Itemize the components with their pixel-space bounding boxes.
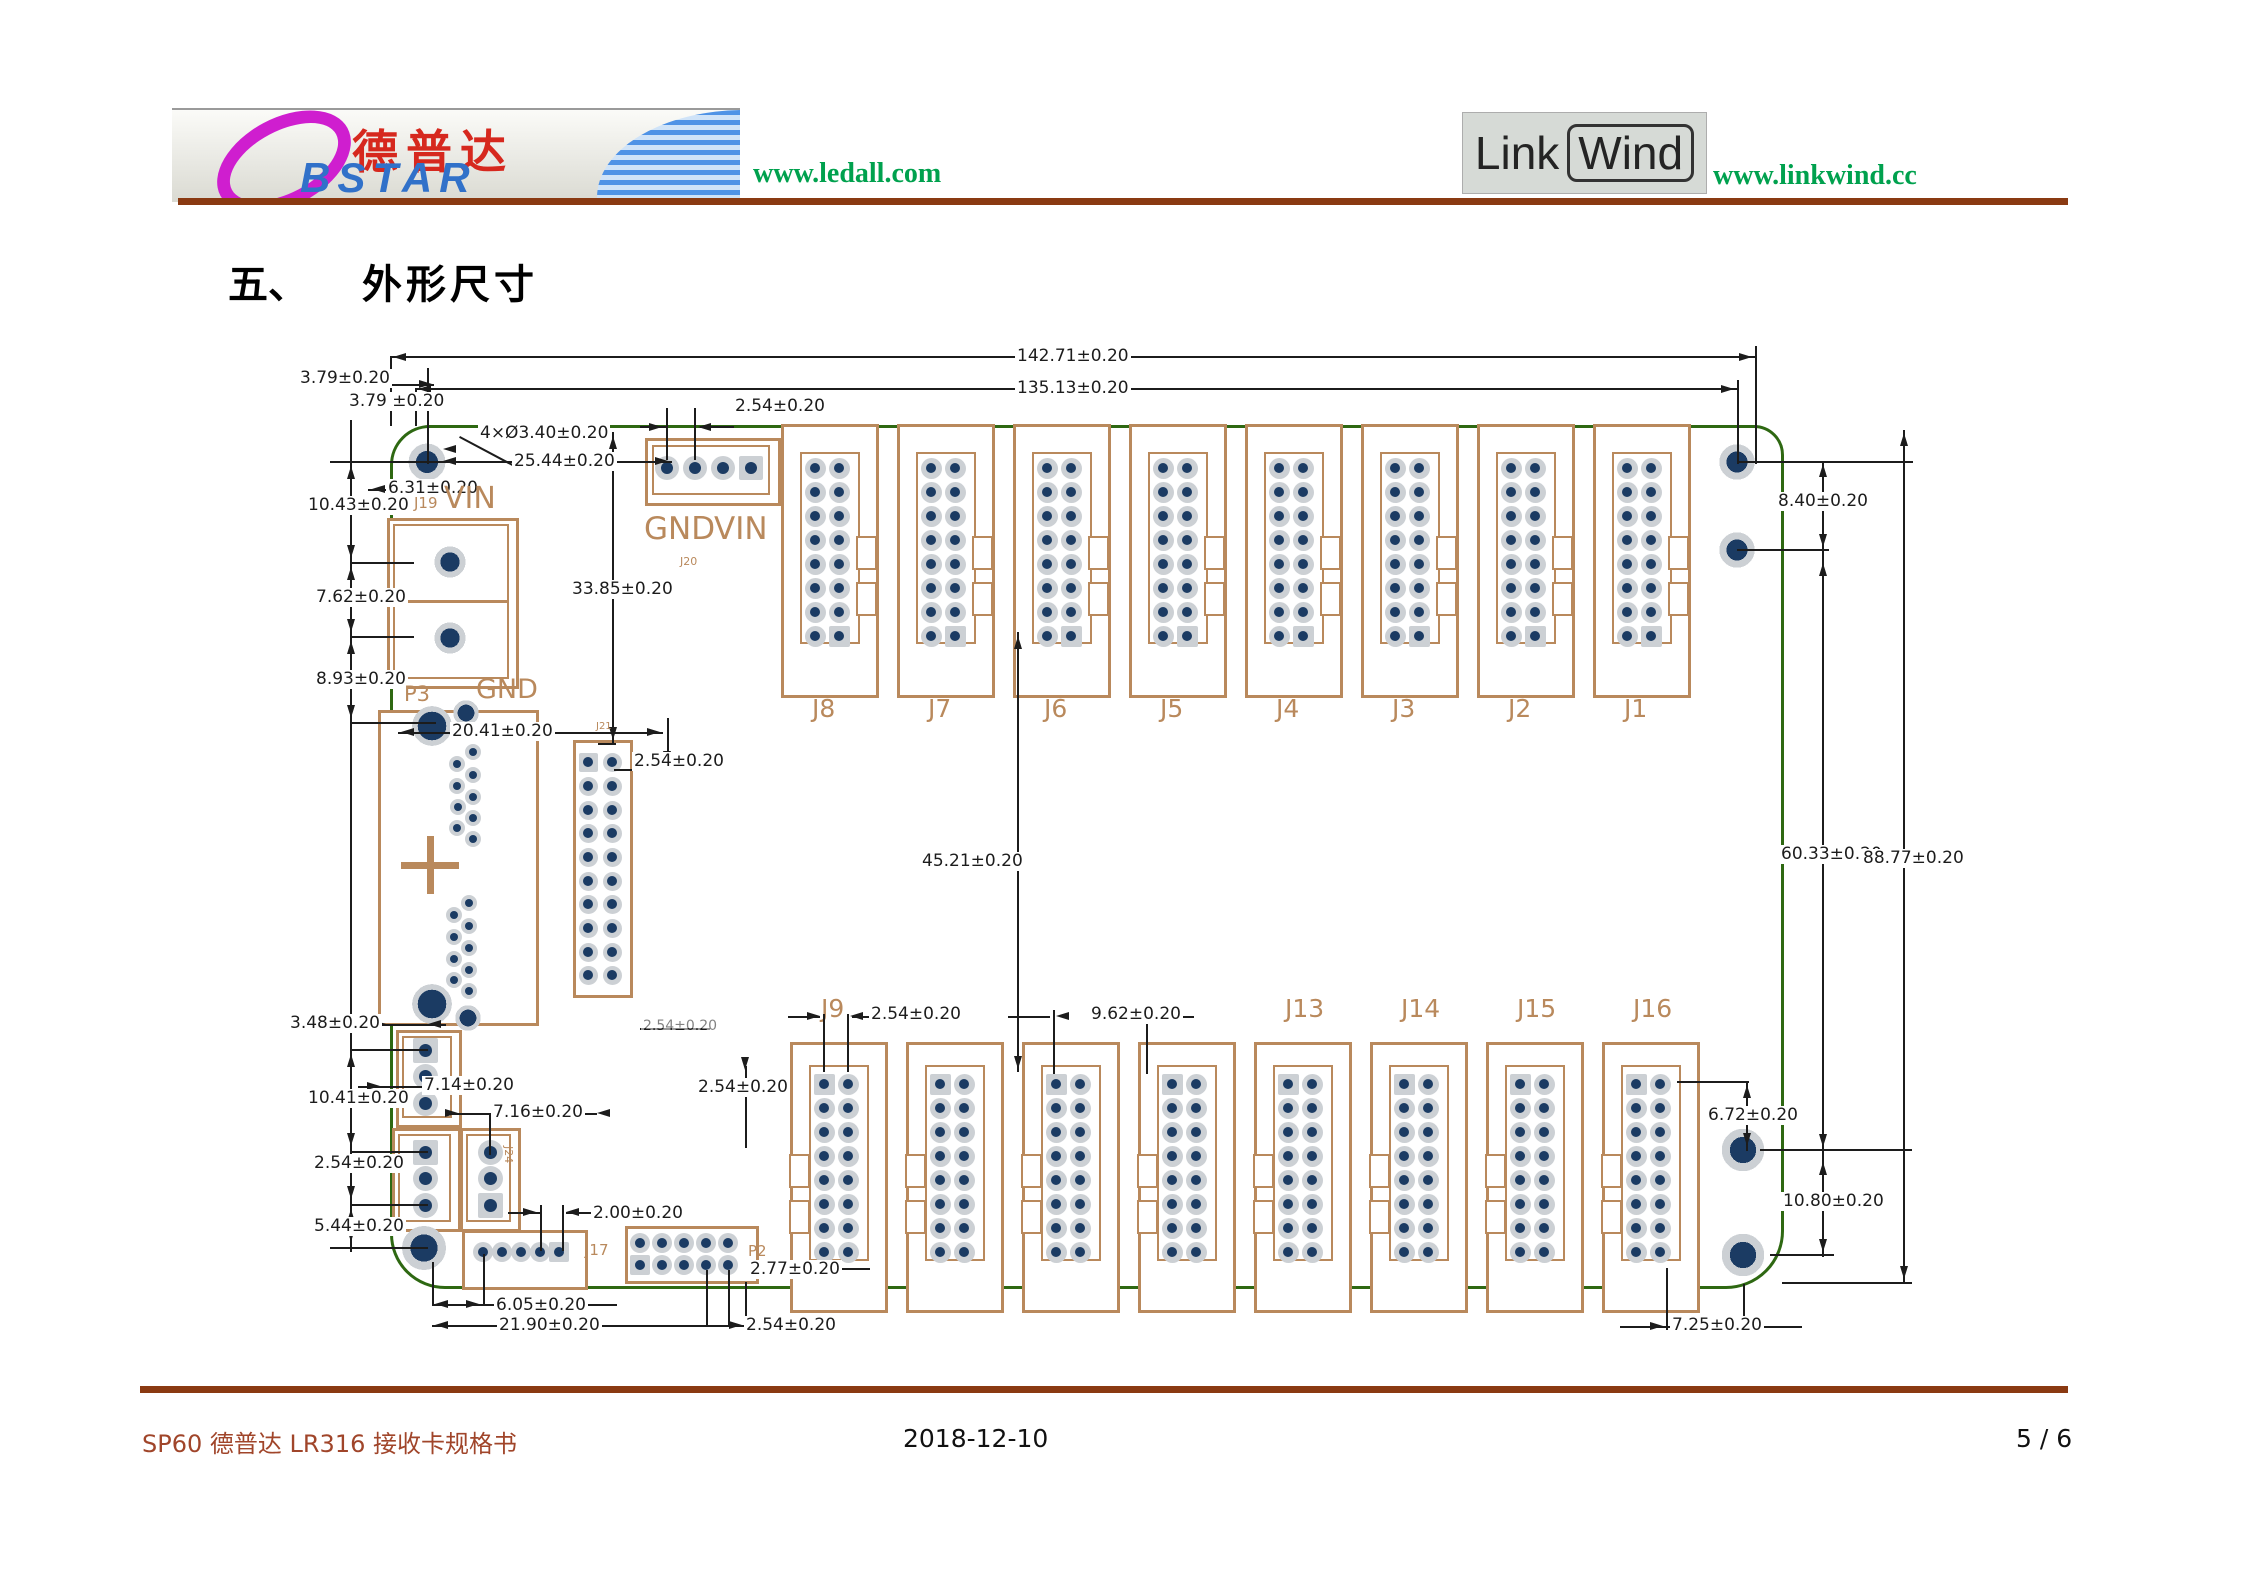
connector-J9-pin bbox=[838, 1170, 859, 1191]
connector-J13-pin bbox=[1278, 1218, 1299, 1239]
connector-J2-pin bbox=[1525, 602, 1546, 623]
connector-J2-pin bbox=[1501, 482, 1522, 503]
dim-arrow-icon bbox=[1900, 1266, 1908, 1279]
connector-bottom_row-2-pin bbox=[1070, 1074, 1091, 1095]
dim-line bbox=[1782, 1282, 1912, 1284]
connector-J1-pin bbox=[1641, 578, 1662, 599]
connector-J5-notch bbox=[1204, 582, 1225, 616]
connector-J21-pin bbox=[603, 801, 622, 820]
dim-arrow-icon bbox=[1819, 1239, 1827, 1252]
connector-J16-pin bbox=[1650, 1242, 1671, 1263]
dim-label: 33.85±0.20 bbox=[570, 580, 675, 599]
connector-label-J3: J3 bbox=[1392, 696, 1415, 721]
connector-J4-pin bbox=[1293, 530, 1314, 551]
connector-J6-pin bbox=[1037, 554, 1058, 575]
connector-J13-pin bbox=[1302, 1074, 1323, 1095]
connector-J9-pin bbox=[814, 1218, 835, 1239]
connector-bottom_row-1-pin bbox=[954, 1194, 975, 1215]
connector-bottom_row-3-pin bbox=[1186, 1074, 1207, 1095]
connector-bottom_row-1-pin bbox=[930, 1218, 951, 1239]
connector-J8-pin bbox=[805, 602, 826, 623]
via-pad bbox=[465, 744, 481, 760]
connector-J3-pin bbox=[1409, 554, 1430, 575]
dim-arrow-icon bbox=[347, 1054, 355, 1067]
dim-arrow-icon bbox=[741, 1057, 749, 1070]
connector-J16-notch bbox=[1601, 1200, 1622, 1234]
dim-line bbox=[1666, 1268, 1668, 1330]
connector-J13-pin bbox=[1302, 1218, 1323, 1239]
connector-J4-pin bbox=[1269, 602, 1290, 623]
dim-label: 2.54±0.20 bbox=[869, 1005, 963, 1024]
dim-line bbox=[350, 562, 414, 564]
connector-J13-pin bbox=[1278, 1098, 1299, 1119]
connector-J13-pin bbox=[1278, 1074, 1299, 1095]
connector-J3-pin bbox=[1409, 482, 1430, 503]
dim-line bbox=[1008, 1016, 1050, 1018]
connector-J6-pin bbox=[1037, 458, 1058, 479]
connector-J7-pin bbox=[921, 626, 942, 647]
connector-J2-pin bbox=[1525, 482, 1546, 503]
connector-J16-pin bbox=[1626, 1170, 1647, 1191]
connector-bottom_row-3-pin bbox=[1186, 1218, 1207, 1239]
solder-pad bbox=[428, 616, 472, 660]
dim-label: 45.21±0.20 bbox=[920, 852, 1025, 871]
connector-J2-pin bbox=[1525, 458, 1546, 479]
connector-J21-pin bbox=[579, 895, 598, 914]
connector-J16-notch bbox=[1601, 1154, 1622, 1188]
connector-J5-pin bbox=[1177, 530, 1198, 551]
connector-J16-pin bbox=[1626, 1074, 1647, 1095]
dim-line bbox=[1737, 461, 1913, 463]
dim-arrow-icon bbox=[807, 1012, 820, 1020]
connector-J4-pin bbox=[1269, 482, 1290, 503]
connector-J20-pin bbox=[711, 456, 735, 480]
connector-J1-pin bbox=[1641, 506, 1662, 527]
connector-J15-pin bbox=[1534, 1242, 1555, 1263]
connector-J7-pin bbox=[945, 530, 966, 551]
dim-line bbox=[694, 408, 696, 460]
connector-J15-pin bbox=[1510, 1170, 1531, 1191]
connector-J5-pin bbox=[1177, 506, 1198, 527]
connector-J3-pin bbox=[1409, 602, 1430, 623]
dim-arrow-icon bbox=[523, 1208, 536, 1216]
connector-J21-pin bbox=[603, 895, 622, 914]
connector-J1-pin bbox=[1617, 554, 1638, 575]
connector-J15-pin bbox=[1510, 1146, 1531, 1167]
connector-J8-pin bbox=[829, 602, 850, 623]
connector-J4-pin bbox=[1269, 626, 1290, 647]
dim-label: 2.77±0.20 bbox=[748, 1260, 842, 1279]
dim-label: 142.71±0.20 bbox=[1015, 347, 1131, 366]
connector-J14-pin bbox=[1394, 1074, 1415, 1095]
connector-bottom_row-3-pin bbox=[1162, 1074, 1183, 1095]
dim-arrow-icon bbox=[597, 1109, 610, 1117]
connector-P2-pin bbox=[674, 1233, 694, 1253]
via-pad bbox=[446, 929, 462, 945]
connector-J6-pin bbox=[1061, 554, 1082, 575]
connector-J6-pin bbox=[1061, 626, 1082, 647]
connector-J7-pin bbox=[945, 626, 966, 647]
connector-J3-notch bbox=[1436, 536, 1457, 570]
connector-J8-pin bbox=[829, 626, 850, 647]
connector-J15-pin bbox=[1534, 1122, 1555, 1143]
connector-J14-pin bbox=[1394, 1146, 1415, 1167]
connector-J6-pin bbox=[1037, 626, 1058, 647]
connector-bottom_row-3-pin bbox=[1162, 1122, 1183, 1143]
connector-J7-notch bbox=[972, 536, 993, 570]
connector-J3-pin bbox=[1385, 626, 1406, 647]
via-pad bbox=[461, 895, 477, 911]
dim-arrow-icon bbox=[347, 705, 355, 718]
connector-J7-pin bbox=[921, 530, 942, 551]
connector-J15-pin bbox=[1510, 1122, 1531, 1143]
connector-J21-pin bbox=[579, 824, 598, 843]
connector-J4-notch bbox=[1320, 536, 1341, 570]
dim-label: 2.54±0.20 bbox=[744, 1316, 838, 1335]
connector-label-J16: J16 bbox=[1633, 996, 1672, 1021]
silk-label: P3 bbox=[404, 684, 430, 705]
connector-J14-pin bbox=[1418, 1194, 1439, 1215]
via-pad bbox=[449, 778, 465, 794]
connector-J7-pin bbox=[945, 506, 966, 527]
connector-J2-notch bbox=[1552, 582, 1573, 616]
connector-J21-pin bbox=[579, 777, 598, 796]
dim-line bbox=[1737, 549, 1829, 551]
connector-J8-pin bbox=[829, 458, 850, 479]
silk-label: J19 bbox=[414, 496, 438, 511]
connector-J19-divider bbox=[392, 600, 508, 603]
connector-J1-pin bbox=[1641, 602, 1662, 623]
dim-line bbox=[350, 1049, 428, 1051]
connector-bottom_row-2-pin bbox=[1046, 1146, 1067, 1167]
connector-J16-pin bbox=[1650, 1218, 1671, 1239]
connector-J2-pin bbox=[1501, 578, 1522, 599]
via-pad bbox=[446, 951, 462, 967]
connector-bottom_row-2-pin bbox=[1070, 1122, 1091, 1143]
via-pad bbox=[449, 820, 465, 836]
connector-J13-pin bbox=[1278, 1122, 1299, 1143]
connector-J6-pin bbox=[1061, 578, 1082, 599]
connector-J5-pin bbox=[1153, 482, 1174, 503]
via-pad bbox=[461, 983, 477, 999]
silk-label: GND bbox=[644, 514, 715, 545]
dim-line bbox=[666, 408, 668, 460]
connector-bottom_row-2-pin bbox=[1046, 1122, 1067, 1143]
connector-J14-pin bbox=[1418, 1146, 1439, 1167]
dim-arrow-icon bbox=[1743, 1133, 1751, 1146]
connector-bottom_row-2-pin bbox=[1070, 1218, 1091, 1239]
connector-J2-notch bbox=[1552, 536, 1573, 570]
connector-J5-pin bbox=[1177, 458, 1198, 479]
connector-bottom_row-1-pin bbox=[954, 1074, 975, 1095]
dim-arrow-icon bbox=[443, 457, 456, 465]
dim-line bbox=[432, 1262, 434, 1306]
connector-J9-pin bbox=[814, 1170, 835, 1191]
connector-bottom_row-1-pin bbox=[930, 1170, 951, 1191]
dim-arrow-icon bbox=[850, 1012, 863, 1020]
dim-arrow-icon bbox=[466, 1300, 479, 1308]
connector-P2-pin bbox=[718, 1233, 738, 1253]
dim-arrow-icon bbox=[649, 423, 662, 431]
connector-J5-pin bbox=[1177, 482, 1198, 503]
dim-arrow-icon bbox=[1014, 636, 1022, 649]
connector-bottom_row-3-pin bbox=[1186, 1194, 1207, 1215]
connector-J13-pin bbox=[1278, 1146, 1299, 1167]
connector-label-J14: J14 bbox=[1401, 996, 1440, 1021]
dim-label: 2.00±0.20 bbox=[591, 1204, 685, 1223]
connector-J21-pin bbox=[579, 943, 598, 962]
connector-J15-pin bbox=[1534, 1218, 1555, 1239]
connector-J21-pin bbox=[603, 824, 622, 843]
connector-bottom_row-1-pin bbox=[930, 1098, 951, 1119]
connector-J21-pin bbox=[603, 943, 622, 962]
connector-J7-pin bbox=[945, 554, 966, 575]
connector-J1-pin bbox=[1617, 602, 1638, 623]
connector-J20-pin bbox=[739, 456, 763, 480]
connector-J7-pin bbox=[921, 506, 942, 527]
fiducial-cross-icon bbox=[427, 836, 434, 894]
connector-bottom_row-3-pin bbox=[1162, 1218, 1183, 1239]
connector-label-J8: J8 bbox=[812, 696, 835, 721]
connector-P2-pin bbox=[652, 1255, 672, 1275]
connector-J13-notch bbox=[1253, 1200, 1274, 1234]
dim-arrow-icon bbox=[445, 1109, 458, 1117]
connector-bottom_row-2-pin bbox=[1070, 1242, 1091, 1263]
connector-J16-pin bbox=[1650, 1098, 1671, 1119]
connector-J5-pin bbox=[1153, 554, 1174, 575]
connector-J7-pin bbox=[921, 578, 942, 599]
connector-J17-pin bbox=[511, 1242, 531, 1262]
connector-conn-3pin-b-pin bbox=[413, 1166, 438, 1191]
connector-bottom_row-2-notch bbox=[1021, 1200, 1042, 1234]
dim-arrow-icon bbox=[1819, 563, 1827, 576]
connector-J17-pin bbox=[549, 1242, 569, 1262]
via-pad bbox=[446, 907, 462, 923]
connector-J4-pin bbox=[1293, 578, 1314, 599]
connector-bottom_row-1-pin bbox=[954, 1098, 975, 1119]
via-pad bbox=[449, 756, 465, 772]
connector-J6-pin bbox=[1061, 530, 1082, 551]
dim-line bbox=[330, 461, 448, 463]
connector-J2-pin bbox=[1501, 506, 1522, 527]
connector-J14-pin bbox=[1418, 1170, 1439, 1191]
silk-label: J17 bbox=[585, 1243, 609, 1258]
connector-J14-pin bbox=[1418, 1074, 1439, 1095]
connector-J9-pin bbox=[838, 1194, 859, 1215]
footer-divider bbox=[140, 1386, 2068, 1393]
dim-arrow-icon bbox=[435, 1321, 448, 1329]
connector-J15-pin bbox=[1534, 1194, 1555, 1215]
dim-line bbox=[350, 636, 414, 638]
connector-J9-pin bbox=[814, 1098, 835, 1119]
connector-J21-pin bbox=[603, 966, 622, 985]
dim-arrow-icon bbox=[698, 423, 711, 431]
silk-label: J21 bbox=[596, 722, 612, 732]
connector-J14-pin bbox=[1394, 1170, 1415, 1191]
connector-J15-pin bbox=[1510, 1098, 1531, 1119]
connector-J5-pin bbox=[1153, 458, 1174, 479]
dim-arrow-icon bbox=[1900, 433, 1908, 446]
dim-line bbox=[728, 1270, 730, 1326]
dim-label: 2.54±0.20 bbox=[632, 752, 726, 771]
connector-J6-pin bbox=[1037, 482, 1058, 503]
dim-label: 5.44±0.20 bbox=[312, 1217, 406, 1236]
connector-bottom_row-1-pin bbox=[930, 1146, 951, 1167]
connector-J15-notch bbox=[1485, 1154, 1506, 1188]
connector-bottom_row-3-pin bbox=[1162, 1170, 1183, 1191]
connector-J15-pin bbox=[1534, 1170, 1555, 1191]
connector-J1-pin bbox=[1641, 554, 1662, 575]
connector-J2-pin bbox=[1501, 626, 1522, 647]
connector-J1-pin bbox=[1617, 506, 1638, 527]
dim-line bbox=[598, 743, 616, 745]
connector-J9-notch bbox=[789, 1154, 810, 1188]
dim-label: 3.79±0.20 bbox=[298, 369, 392, 388]
connector-J3-pin bbox=[1409, 506, 1430, 527]
connector-J15-pin bbox=[1534, 1146, 1555, 1167]
connector-bottom_row-1-pin bbox=[930, 1074, 951, 1095]
connector-J6-pin bbox=[1037, 578, 1058, 599]
connector-J9-pin bbox=[814, 1122, 835, 1143]
footer-date: 2018-12-10 bbox=[903, 1424, 1048, 1453]
dim-arrow-icon bbox=[401, 728, 414, 736]
connector-J14-pin bbox=[1394, 1242, 1415, 1263]
connector-J9-pin bbox=[838, 1074, 859, 1095]
connector-J6-pin bbox=[1061, 482, 1082, 503]
connector-bottom_row-2-pin bbox=[1070, 1170, 1091, 1191]
connector-J8-pin bbox=[805, 506, 826, 527]
connector-J16-pin bbox=[1626, 1194, 1647, 1215]
dim-label: 10.80±0.20 bbox=[1781, 1192, 1886, 1211]
connector-J9-pin bbox=[838, 1146, 859, 1167]
dim-arrow-icon bbox=[347, 641, 355, 654]
footer-page-number: 5 / 6 bbox=[2016, 1424, 2072, 1453]
connector-bottom_row-3-pin bbox=[1186, 1098, 1207, 1119]
dim-label: 2.54±0.20 bbox=[696, 1078, 790, 1097]
dim-label: 2.54±0.20 bbox=[312, 1154, 406, 1173]
connector-J9-notch bbox=[789, 1200, 810, 1234]
connector-J16-pin bbox=[1626, 1242, 1647, 1263]
connector-J7-pin bbox=[945, 458, 966, 479]
dim-line bbox=[1053, 1010, 1055, 1074]
connector-J8-pin bbox=[829, 554, 850, 575]
dim-arrow-icon bbox=[1014, 1056, 1022, 1069]
solder-pad bbox=[450, 1000, 486, 1036]
connector-J15-pin bbox=[1510, 1074, 1531, 1095]
via-pad bbox=[446, 972, 462, 988]
connector-J13-pin bbox=[1278, 1242, 1299, 1263]
dim-label: 4×Ø3.40±0.20 bbox=[478, 424, 610, 443]
connector-J8-notch bbox=[856, 536, 877, 570]
connector-J2-pin bbox=[1525, 578, 1546, 599]
connector-J1-pin bbox=[1641, 626, 1662, 647]
dim-line bbox=[823, 1014, 825, 1072]
connector-bottom_row-2-pin bbox=[1046, 1098, 1067, 1119]
via-pad bbox=[465, 789, 481, 805]
connector-J8-pin bbox=[829, 578, 850, 599]
dim-arrow-icon bbox=[1819, 1162, 1827, 1175]
connector-bottom_row-1-pin bbox=[954, 1146, 975, 1167]
connector-J5-pin bbox=[1153, 506, 1174, 527]
connector-J9-pin bbox=[838, 1098, 859, 1119]
via-pad bbox=[461, 962, 477, 978]
connector-J13-pin bbox=[1278, 1170, 1299, 1191]
connector-J8-pin bbox=[829, 482, 850, 503]
connector-J7-pin bbox=[945, 602, 966, 623]
connector-P2-pin bbox=[652, 1233, 672, 1253]
dim-line bbox=[1760, 1149, 1912, 1151]
connector-J5-pin bbox=[1153, 626, 1174, 647]
connector-P2-pin bbox=[674, 1255, 694, 1275]
connector-J4-pin bbox=[1269, 554, 1290, 575]
connector-J6-pin bbox=[1061, 506, 1082, 527]
connector-J15-notch bbox=[1485, 1200, 1506, 1234]
connector-bottom_row-1-pin bbox=[954, 1242, 975, 1263]
dim-arrow-icon bbox=[393, 353, 406, 361]
via-pad bbox=[465, 767, 481, 783]
dim-arrow-icon bbox=[419, 380, 432, 388]
connector-J8-pin bbox=[829, 506, 850, 527]
dim-arrow-icon bbox=[347, 1186, 355, 1199]
connector-J7-notch bbox=[972, 582, 993, 616]
connector-J4-pin bbox=[1293, 554, 1314, 575]
via-pad bbox=[465, 831, 481, 847]
silk-label: VIN bbox=[714, 514, 768, 545]
connector-J15-pin bbox=[1510, 1242, 1531, 1263]
connector-bottom_row-3-pin bbox=[1162, 1146, 1183, 1167]
connector-J5-notch bbox=[1204, 536, 1225, 570]
connector-J13-notch bbox=[1253, 1154, 1274, 1188]
connector-bottom_row-3-pin bbox=[1162, 1098, 1183, 1119]
dim-line bbox=[562, 1205, 564, 1251]
connector-J4-pin bbox=[1269, 458, 1290, 479]
dim-label: 135.13±0.20 bbox=[1015, 379, 1131, 398]
dim-label: 9.62±0.20 bbox=[1089, 1005, 1183, 1024]
dim-line bbox=[1770, 1254, 1834, 1256]
connector-J21-pin bbox=[579, 848, 598, 867]
connector-J14-notch bbox=[1369, 1200, 1390, 1234]
connector-J7-pin bbox=[945, 578, 966, 599]
connector-J2-pin bbox=[1525, 506, 1546, 527]
connector-J7-pin bbox=[921, 554, 942, 575]
connector-J3-pin bbox=[1385, 578, 1406, 599]
dim-line bbox=[350, 1204, 428, 1206]
connector-J8-pin bbox=[805, 458, 826, 479]
connector-J21-pin bbox=[579, 966, 598, 985]
connector-J16-pin bbox=[1650, 1170, 1671, 1191]
connector-J16-pin bbox=[1626, 1146, 1647, 1167]
connector-J7-pin bbox=[921, 602, 942, 623]
connector-J14-pin bbox=[1394, 1194, 1415, 1215]
connector-J4-pin bbox=[1269, 530, 1290, 551]
connector-P2-pin bbox=[630, 1233, 650, 1253]
connector-J2-pin bbox=[1501, 602, 1522, 623]
connector-J3-pin bbox=[1409, 458, 1430, 479]
silk-label: VIN bbox=[444, 484, 496, 514]
connector-bottom_row-2-pin bbox=[1046, 1242, 1067, 1263]
connector-J2-pin bbox=[1501, 554, 1522, 575]
connector-J15-pin bbox=[1510, 1194, 1531, 1215]
spec-sheet-page: 德普达 BSTAR www.ledall.com Link Wind www.l… bbox=[0, 0, 2245, 1587]
dim-line bbox=[540, 1205, 542, 1251]
connector-J1-pin bbox=[1617, 578, 1638, 599]
connector-J2-pin bbox=[1501, 530, 1522, 551]
connector-J13-pin bbox=[1302, 1170, 1323, 1191]
dim-arrow-icon bbox=[347, 545, 355, 558]
connector-label-J5: J5 bbox=[1160, 696, 1183, 721]
connector-bottom_row-1-pin bbox=[930, 1122, 951, 1143]
dim-line bbox=[706, 1270, 708, 1326]
